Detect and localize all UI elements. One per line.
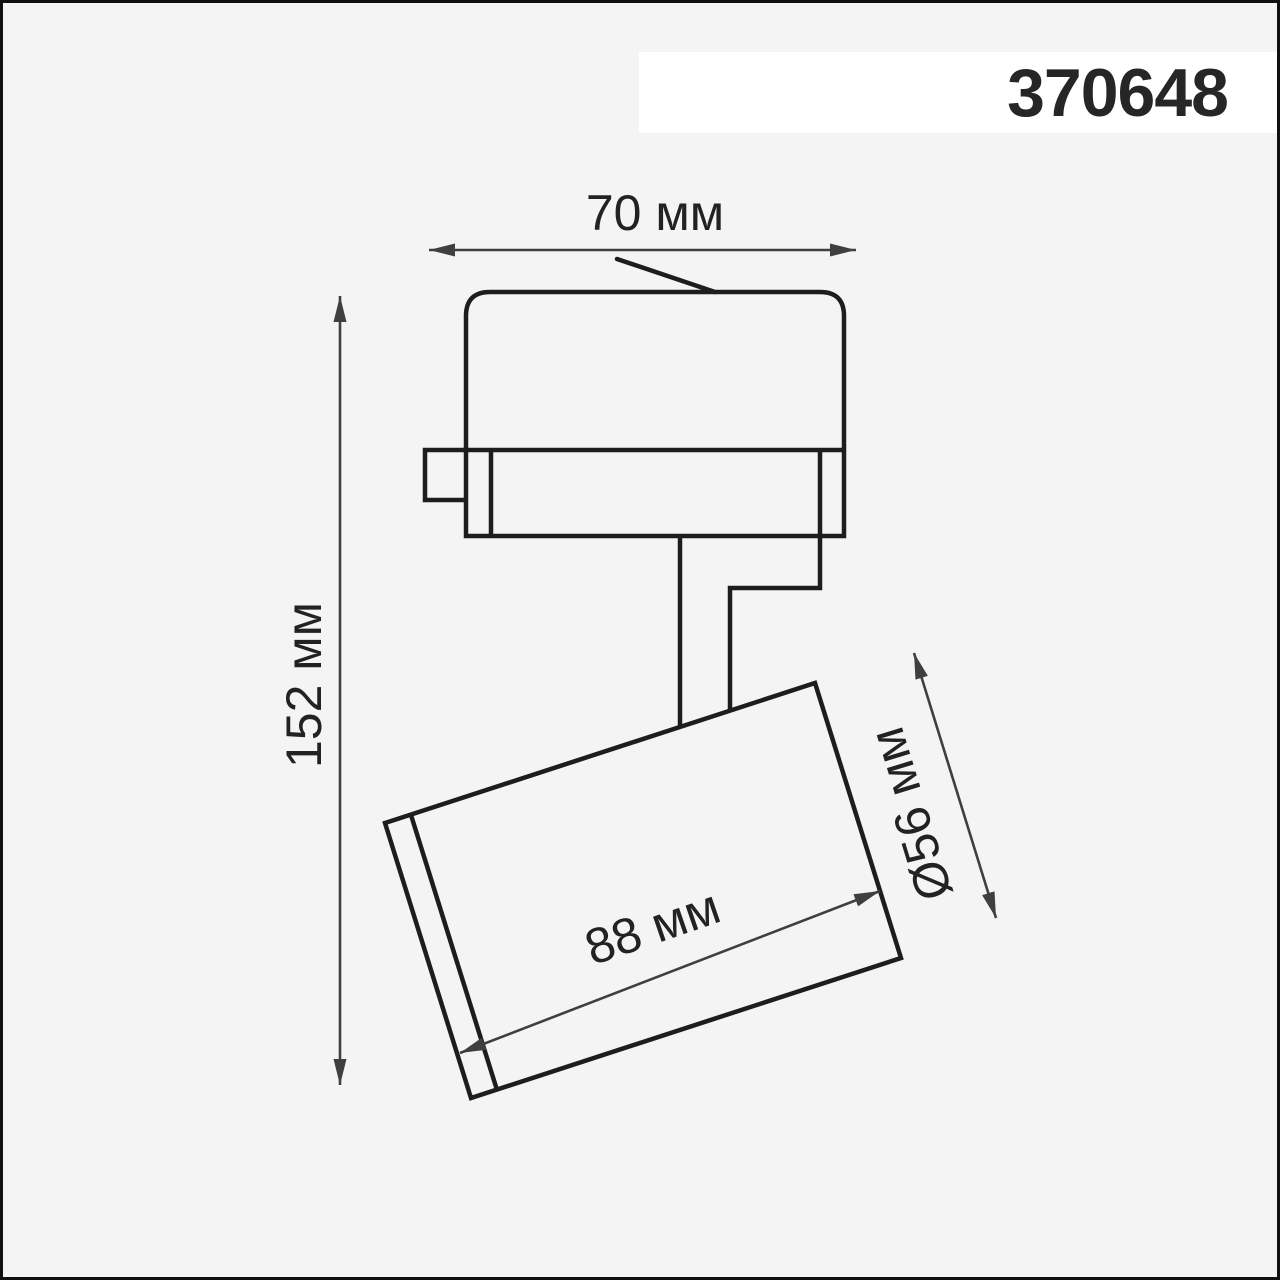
dim-adapter-width-label: 70 мм (586, 185, 724, 241)
drawing-canvas: 370648 70 мм 152 мм (0, 0, 1280, 1280)
track-adapter-outline (466, 292, 844, 536)
dim-overall-height-label: 152 мм (276, 602, 332, 768)
technical-drawing: 70 мм 152 мм 88 мм Ø56 мм (3, 3, 1280, 1280)
spot-head-outline (385, 683, 901, 1098)
dim-head-length-label: 88 мм (578, 878, 727, 976)
lock-lever-line (617, 259, 715, 292)
adapter-side-tab (425, 450, 466, 500)
dim-head-diameter-label: Ø56 мм (858, 721, 963, 907)
